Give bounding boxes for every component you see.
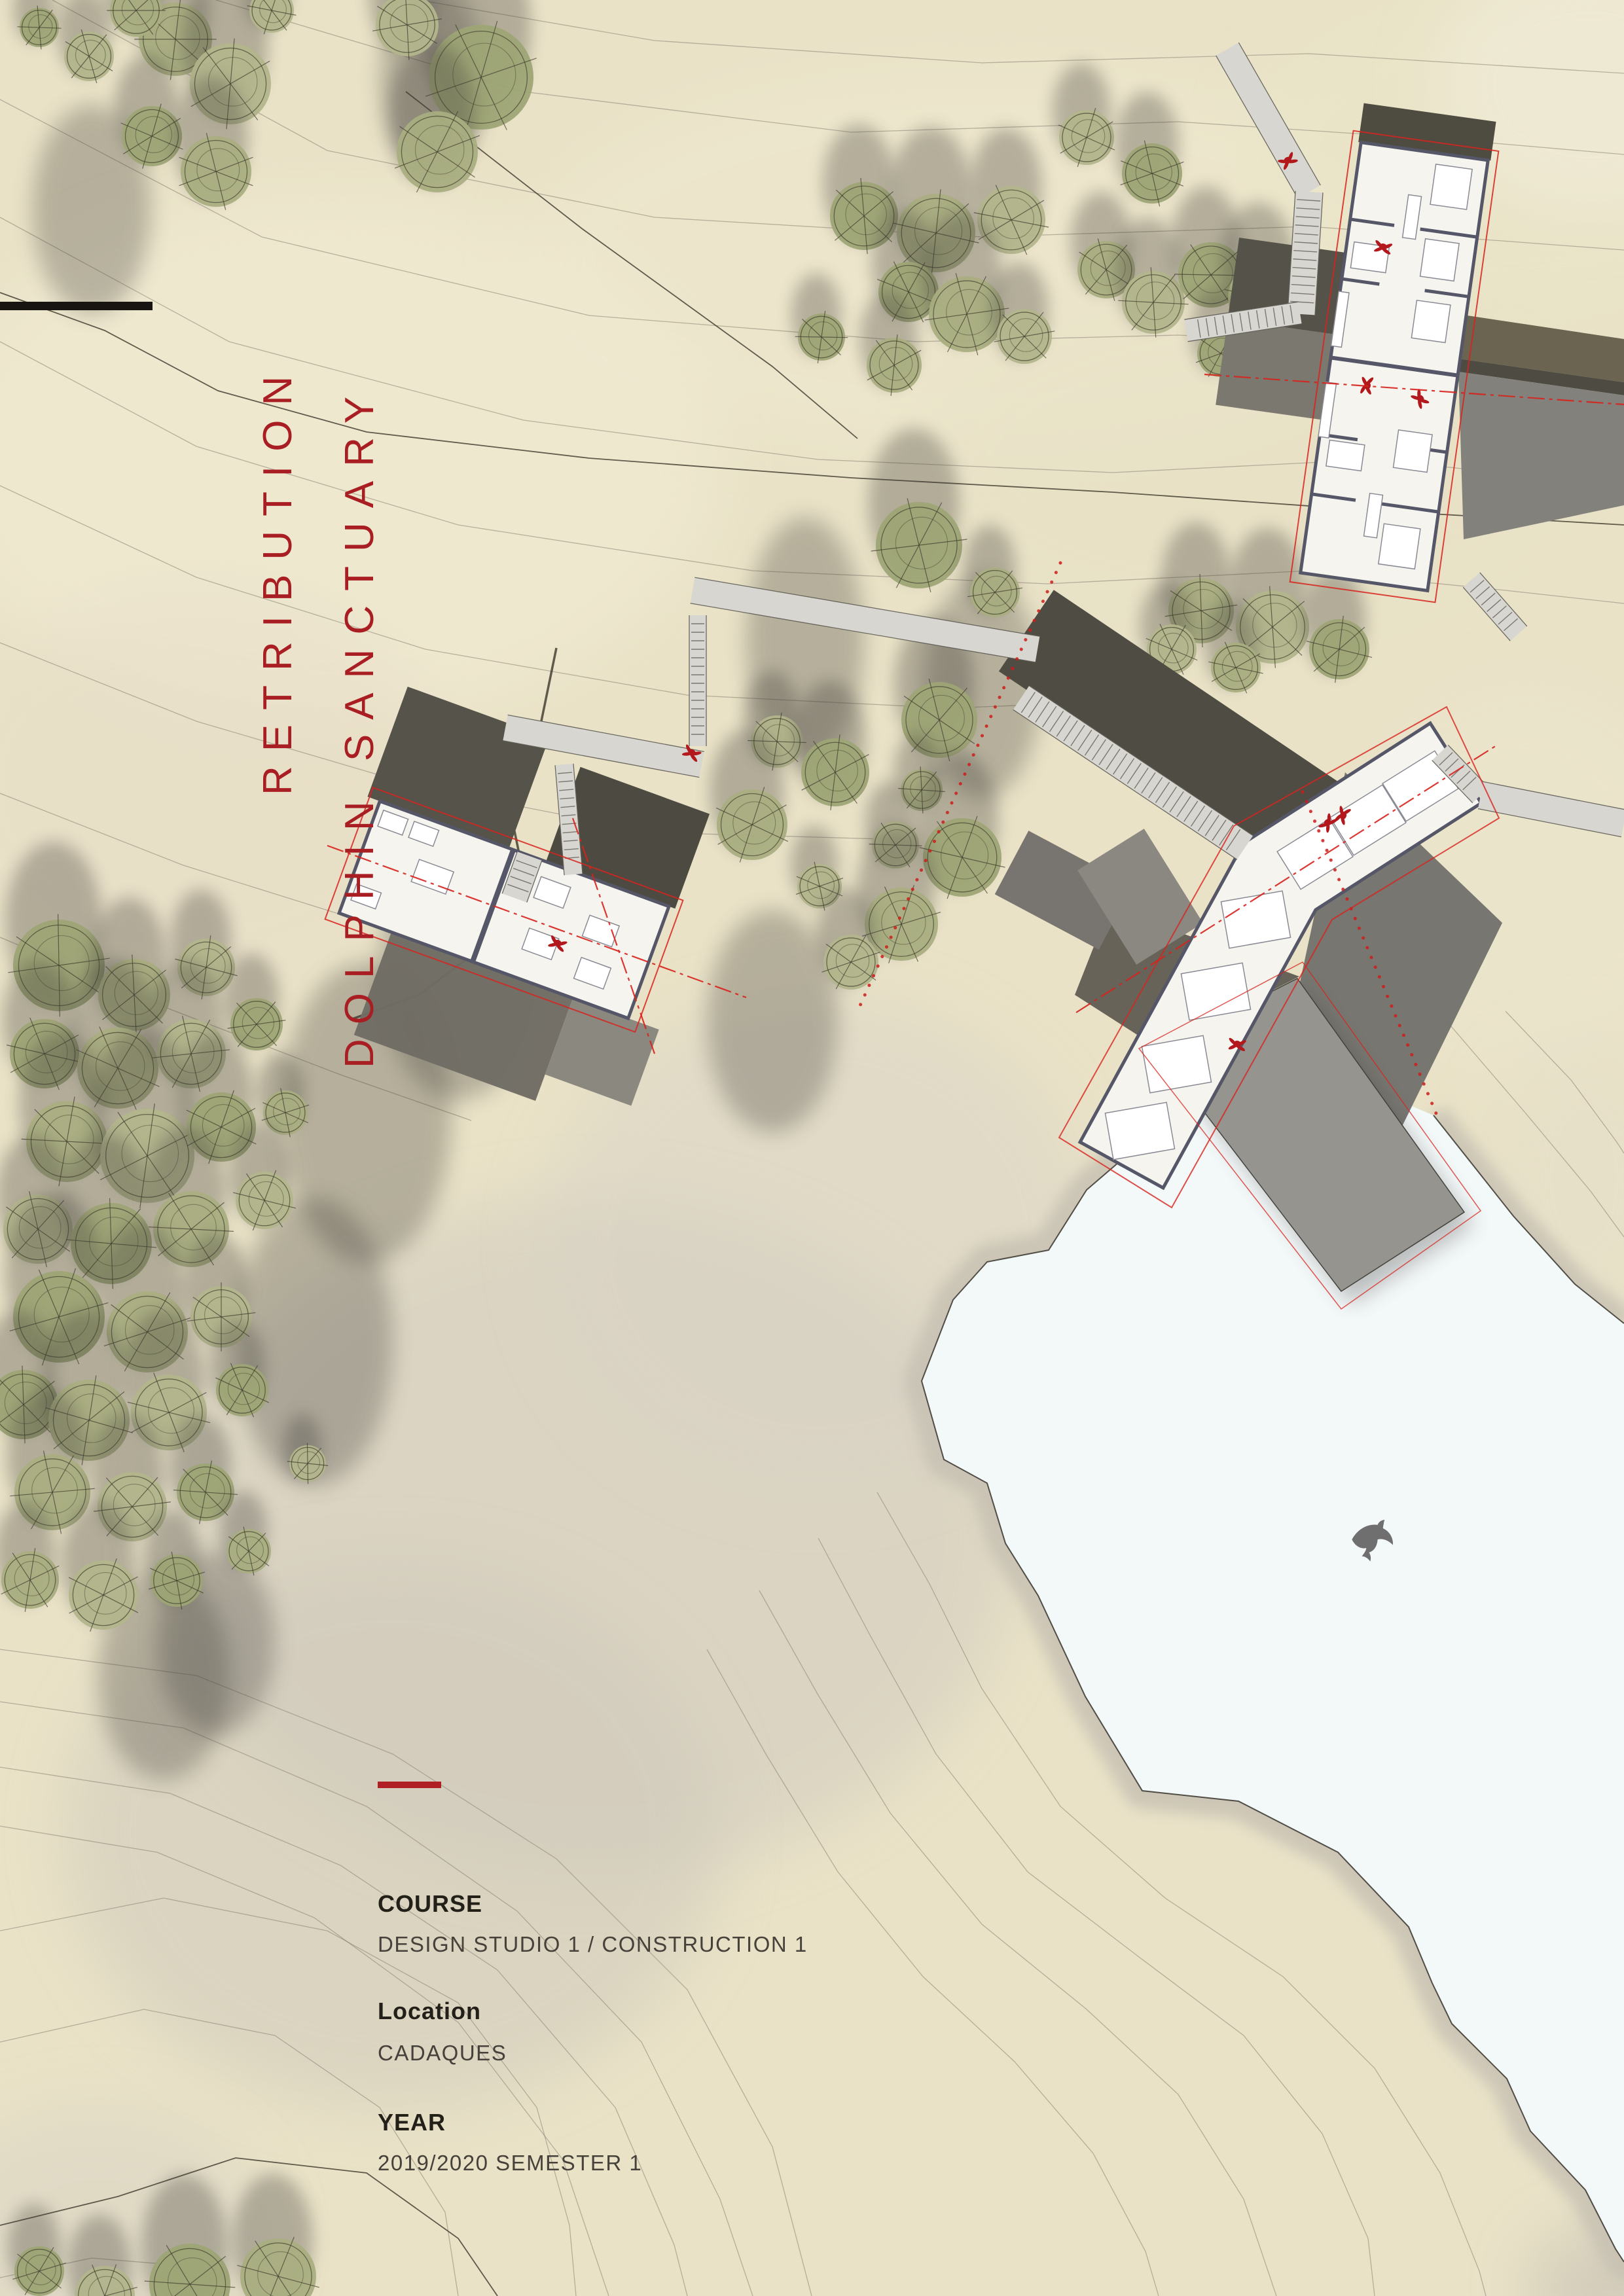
course-label: COURSE [378,1890,482,1918]
location-value: CADAQUES [378,2041,507,2066]
year-value: 2019/2020 SEMESTER 1 [378,2151,642,2176]
year-label: YEAR [378,2109,446,2136]
red-divider-rule [378,1782,441,1788]
site-plan-map [0,0,1624,2296]
roof-east-bands [1458,314,1624,539]
project-title-dolphin-sanctuary: DOLPHIN SANCTUARY [340,382,380,1068]
top-left-rule [0,302,153,310]
portfolio-page: RETRIBUTION DOLPHIN SANCTUARY COURSE DES… [0,0,1624,2296]
project-title-retribution: RETRIBUTION [258,362,298,795]
location-label: Location [378,1998,481,2025]
course-value: DESIGN STUDIO 1 / CONSTRUCTION 1 [378,1932,808,1957]
